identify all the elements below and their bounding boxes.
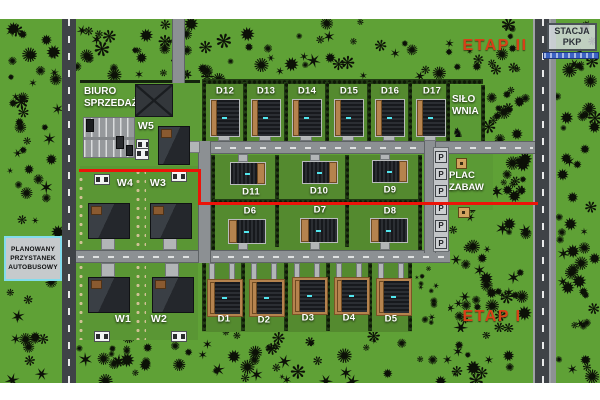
tree-icon: ✹ (379, 368, 392, 379)
playground-label-line2: ZABAW (449, 182, 484, 194)
tree-icon: ✹ (562, 189, 581, 208)
parking-spot: P (435, 151, 447, 163)
tree-icon: ✺ (332, 343, 358, 368)
tree-icon: ❋ (6, 288, 15, 298)
tree-icon: ✹ (515, 265, 526, 277)
driveway (336, 263, 342, 278)
forest-region: ✹❋✹✹❋✹❋✹✶✺✶✹✺❋✺ (487, 148, 533, 206)
tree-icon: ✶ (50, 99, 62, 116)
boundary-line-segment (79, 169, 200, 172)
signboard (135, 148, 149, 160)
sidewalk-east (551, 19, 556, 383)
forest-region: ✺❋✺❋✹✺✹❋✺✶✺✹❋✺✶✹✺✶✶✶✹✺✶✶❋✶✹✶✶❋✹❋❋❋✺✺✹✹✹✶… (0, 19, 62, 383)
tree-icon: ✺ (226, 56, 236, 65)
tree-icon: ❋ (219, 332, 230, 339)
driveway (101, 263, 115, 277)
site-plan-map: ✺❋✺❋✹✺✹❋✺✶✺✹❋✺✶✹✺✶✶✶✹✺✶✶❋✶✹✶✶❋✹❋❋❋✺✺✹✹✹✶… (0, 0, 600, 400)
bus-stop-sign: PLANOWANY PRZYSTANEK AUTOBUSOWY (4, 236, 62, 281)
horse-icon: ♞ (452, 126, 464, 141)
house-label-D2: D2 (258, 315, 271, 326)
house-W4 (88, 203, 130, 239)
hedge (202, 263, 206, 331)
parking-spot: P (435, 220, 447, 232)
hedge (325, 82, 329, 142)
bush-row (77, 263, 86, 340)
house-D10 (302, 161, 338, 184)
road-centerline (78, 256, 448, 258)
house-label-D9: D9 (384, 185, 397, 196)
tree-icon: ✺ (556, 353, 564, 364)
tree-icon: ✺ (249, 53, 273, 78)
signboard (94, 331, 110, 342)
road-west (62, 19, 76, 383)
bush-row (134, 263, 146, 340)
house-D11 (230, 162, 266, 185)
tree-icon: ✺ (556, 91, 565, 101)
hedge (367, 82, 371, 142)
tree-icon: ✶ (27, 212, 40, 225)
tree-icon: ✶ (5, 166, 15, 177)
house-D5 (377, 279, 411, 315)
house-D15 (334, 99, 364, 137)
tree-icon: ❋ (20, 354, 35, 368)
tree-icon: ✺ (583, 365, 600, 383)
tree-icon: ✹ (118, 348, 137, 370)
hedge (243, 82, 247, 142)
house-label-D7: D7 (314, 205, 327, 216)
bush-row (77, 166, 86, 250)
tree-icon: ❋ (158, 65, 169, 77)
tree-icon: ✹ (442, 47, 455, 60)
house-label-D5: D5 (385, 314, 398, 325)
tree-icon: ✹ (128, 45, 140, 56)
stage1-label: ETAP I (462, 308, 521, 326)
tree-icon: ✹ (499, 344, 519, 364)
tree-icon: ✺ (459, 259, 473, 274)
signboard (171, 171, 187, 182)
house-label-D12: D12 (216, 86, 234, 97)
tree-icon: ✹ (476, 269, 495, 290)
tree-icon: ✶ (484, 245, 495, 254)
boundary-line-segment (198, 202, 538, 205)
house-D17 (416, 99, 446, 137)
house-D13 (251, 99, 281, 137)
house-label-D8: D8 (384, 206, 397, 217)
driveway (310, 154, 320, 161)
stage2-label: ETAP II (462, 37, 527, 55)
house-label-D13: D13 (257, 86, 275, 97)
house-D3 (293, 278, 327, 314)
gym-label-line1: SIŁO (452, 94, 479, 106)
car (86, 119, 94, 132)
parking-spot: P (435, 237, 447, 249)
house-label-W4: W4 (117, 177, 133, 189)
tree-icon: ✺ (394, 337, 408, 349)
driveway (229, 263, 235, 280)
road-centerline (68, 19, 70, 383)
tree-icon: ❋ (35, 332, 50, 349)
playground-label-line1: PLAC (449, 170, 484, 182)
house-D2 (250, 280, 284, 316)
tree-icon: ✶ (36, 130, 58, 151)
tree-icon: ✹ (43, 149, 62, 168)
bus-stop-sign-line3: AUTOBUSOWY (8, 263, 58, 272)
tree-icon: ✹ (513, 95, 527, 111)
house-label-D10: D10 (310, 186, 328, 197)
tree-icon: ✹ (578, 143, 592, 159)
house-label-D11: D11 (242, 187, 260, 198)
tree-icon: ✶ (274, 64, 288, 77)
gym-label: SIŁO WNIA (452, 94, 479, 118)
road-north-stub (172, 19, 185, 83)
hedge (202, 82, 206, 142)
playground-label: PLAC ZABAW (449, 170, 484, 194)
tree-icon: ❋ (213, 29, 237, 54)
hedge (481, 85, 485, 143)
tree-icon: ✶ (30, 366, 49, 382)
house-W3 (150, 203, 192, 239)
driveway (356, 263, 362, 278)
house-label-W2: W2 (151, 313, 167, 325)
house-label-D3: D3 (302, 313, 315, 324)
tree-icon: ✺ (11, 118, 29, 138)
playground-item (458, 207, 470, 218)
tree-icon: ✺ (501, 168, 513, 182)
house-label-W5: W5 (138, 120, 154, 132)
tree-icon: ❋ (331, 57, 345, 74)
tree-icon: ✹ (136, 26, 157, 49)
house-W5 (158, 126, 190, 165)
hedge (284, 263, 288, 331)
tree-icon: ✹ (183, 347, 193, 359)
forest-region: ✺✺✹✹✺✺❋✺✺✶✹✺✹✹✺✺✹✶✺❋❋❋✺✶✹✹❋❋✺✶✶❋✺✺✹✹❋✹✺✹… (556, 19, 600, 383)
house-D4 (335, 278, 369, 314)
house-D8 (370, 218, 408, 243)
tree-icon: ✺ (38, 193, 50, 203)
house-label-D16: D16 (381, 86, 399, 97)
train-station-sign-line2: PKP (563, 37, 582, 48)
driveway (398, 263, 404, 279)
driveway (294, 263, 300, 278)
tree-icon: ❋ (360, 343, 370, 352)
bush-row (134, 168, 146, 250)
tree-icon: ✶ (247, 365, 270, 383)
tree-icon: ✹ (142, 358, 152, 370)
house-D6 (228, 219, 266, 244)
tree-icon: ❋ (425, 266, 433, 274)
tree-icon: ❋ (17, 213, 29, 227)
tree-icon: ✹ (429, 371, 449, 383)
tree-icon: ✶ (513, 221, 533, 240)
tree-icon: ✹ (450, 61, 463, 74)
tree-icon: ✶ (194, 348, 210, 363)
tree-icon: ✺ (556, 225, 567, 238)
tree-icon: ✶ (416, 283, 426, 293)
road-centerline (200, 147, 533, 149)
house-label-D14: D14 (298, 86, 316, 97)
car (126, 145, 133, 156)
tree-icon: ✺ (103, 63, 128, 80)
train-station-sign: STACJA PKP (547, 23, 597, 51)
tree-icon: ✶ (131, 68, 146, 80)
forest-region: ✹✺✹✺✶✹✹❋✺❋✹❋✹✺❋✹ (483, 85, 533, 145)
tree-icon: ❋ (582, 196, 600, 216)
tree-icon: ✹ (5, 73, 15, 82)
driveway (271, 263, 277, 280)
hedge (284, 82, 288, 142)
tree-icon: ❋ (449, 224, 462, 235)
platform-bar (543, 52, 599, 59)
tree-icon: ❋ (584, 300, 600, 319)
driveway (314, 263, 320, 278)
tree-icon: ❋ (356, 19, 367, 26)
tree-icon: ❋ (311, 355, 324, 369)
house-D12 (210, 99, 240, 137)
tree-icon: ✹ (418, 272, 426, 281)
tree-icon: ❋ (347, 34, 359, 46)
tree-icon: ✺ (295, 33, 303, 42)
boundary-line-segment (198, 169, 201, 205)
tree-icon: ✹ (6, 22, 21, 40)
parking-spot: P (435, 168, 447, 180)
tree-icon: ✶ (452, 297, 465, 308)
driveway (378, 263, 384, 279)
tree-icon: ✶ (1, 369, 24, 383)
hedge (408, 82, 412, 142)
house-D7 (300, 218, 338, 243)
playground-item (456, 158, 467, 169)
tree-icon: ❋ (232, 332, 241, 342)
sales-office-building (135, 84, 173, 117)
tree-icon: ❋ (373, 38, 389, 56)
house-D16 (375, 99, 405, 137)
driveway (238, 154, 248, 162)
bus-stop-sign-line1: PLANOWANY (11, 245, 55, 254)
car (116, 136, 124, 149)
house-D1 (208, 280, 242, 316)
hedge (446, 82, 450, 142)
driveway (251, 263, 257, 280)
house-W2 (152, 277, 194, 313)
parking-spot: P (435, 185, 447, 197)
tree-icon: ✶ (25, 77, 39, 90)
driveway (165, 263, 179, 277)
tree-icon: ❋ (482, 332, 494, 341)
house-D9 (372, 160, 408, 183)
tree-icon: ✹ (509, 126, 527, 143)
house-label-D15: D15 (340, 86, 358, 97)
driveway (209, 263, 215, 280)
road-east (533, 19, 551, 383)
house-label-D1: D1 (218, 314, 231, 325)
house-label-D17: D17 (423, 86, 441, 97)
house-W1 (88, 277, 130, 313)
house-label-W3: W3 (150, 177, 166, 189)
forest-region: ✶✺✺✶❋✺✶✺✶✺✹✺ (413, 263, 445, 329)
house-D14 (292, 99, 322, 137)
tree-icon: ❋ (20, 291, 35, 306)
signboard (171, 331, 187, 342)
gym-label-line2: WNIA (452, 106, 479, 118)
train-station-sign-line1: STACJA (554, 26, 589, 37)
road-centerline (542, 19, 544, 383)
house-label-W1: W1 (115, 313, 131, 325)
house-label-D6: D6 (244, 206, 257, 217)
bus-stop-sign-line2: PRZYSTANEK (10, 254, 56, 263)
signboard (94, 174, 110, 185)
house-label-D4: D4 (343, 313, 356, 324)
tree-icon: ✺ (421, 315, 430, 325)
tree-icon: ✹ (464, 352, 473, 362)
